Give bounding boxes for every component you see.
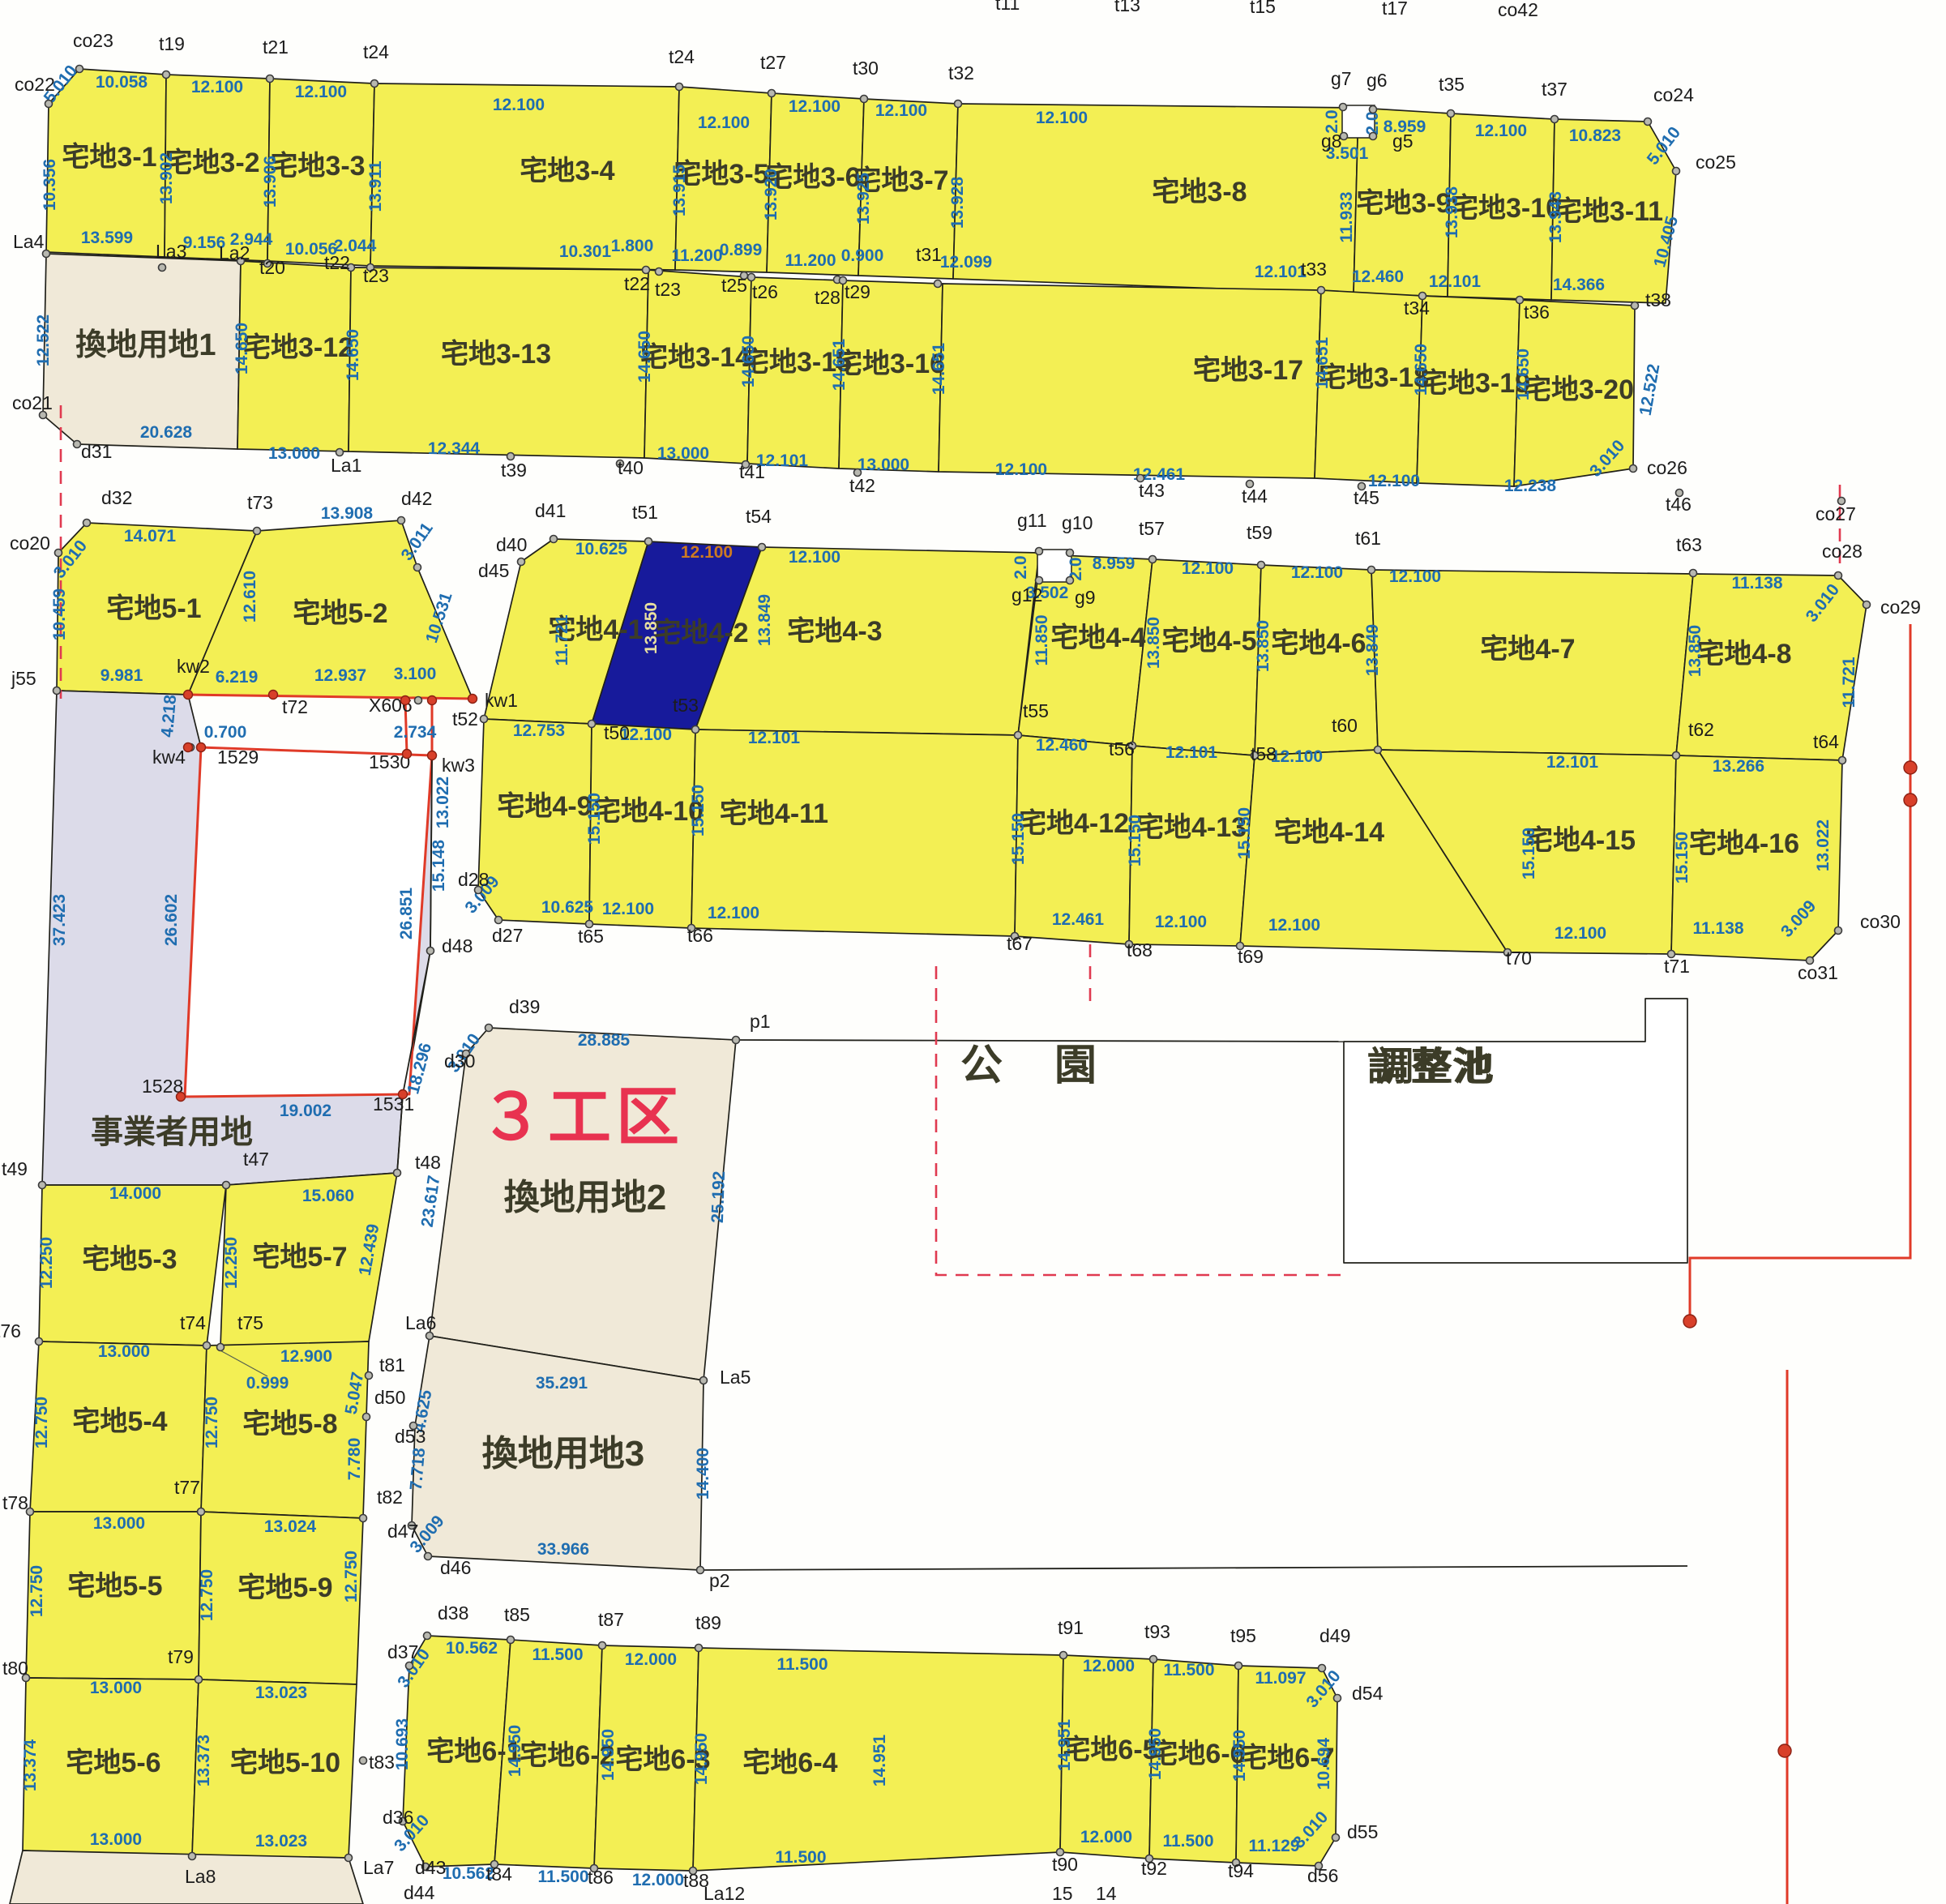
survey-point-t73: t73: [247, 492, 273, 513]
survey-dot-co20: [55, 550, 62, 557]
survey-point-t30: t30: [853, 58, 879, 79]
survey-dot-t93: [1150, 1656, 1157, 1663]
parcel-label-宅地3-4: 宅地3-4: [520, 155, 614, 186]
survey-dot-t87: [599, 1642, 606, 1649]
survey-point-t44: t44: [1242, 486, 1268, 507]
dimension-13.902: 13.902: [157, 152, 176, 204]
survey-dot-t79: [195, 1676, 203, 1684]
dimension-12.461: 12.461: [1052, 910, 1105, 929]
survey-dot-t91: [1060, 1652, 1067, 1659]
survey-dot-t62: [1673, 752, 1680, 759]
survey-point-1531: 1531: [373, 1093, 414, 1115]
survey-dot-t76: [36, 1338, 43, 1346]
dimension-26.851: 26.851: [397, 888, 416, 940]
survey-point-co24: co24: [1653, 84, 1694, 105]
dimension-2.0: 2.0: [1363, 111, 1382, 135]
dimension-4.218: 4.218: [158, 694, 181, 738]
survey-point-t35: t35: [1439, 74, 1465, 95]
survey-point-t15: t15: [1250, 0, 1276, 17]
big-label-公園: 公 園: [960, 1042, 1101, 1089]
dimension-13.850: 13.850: [1144, 617, 1163, 669]
dimension-12.101: 12.101: [1429, 272, 1482, 291]
survey-point-t60: t60: [1332, 715, 1358, 736]
parcel-label-宅地4-14: 宅地4-14: [1274, 816, 1384, 848]
dimension-6.219: 6.219: [216, 668, 259, 687]
survey-point-La12: La12: [704, 1883, 745, 1904]
survey-point-t68: t68: [1127, 939, 1153, 961]
dimension-12.750: 12.750: [203, 1397, 221, 1448]
parcel-label-換地用地3: 換地用地3: [482, 1434, 644, 1474]
survey-dot-t33: [1318, 287, 1325, 294]
survey-point-t69: t69: [1238, 946, 1264, 967]
dimension-20.628: 20.628: [140, 423, 193, 442]
survey-point-g7: g7: [1331, 68, 1352, 89]
survey-point-t72: t72: [282, 696, 308, 717]
survey-dot-g11: [1036, 548, 1043, 555]
dimension-12.100: 12.100: [875, 101, 927, 120]
survey-point-d32: d32: [101, 487, 132, 508]
survey-dot-d49: [1319, 1665, 1326, 1672]
parcel-label-宅地3-3: 宅地3-3: [270, 150, 365, 182]
survey-point-d47: d47: [387, 1521, 418, 1542]
parcel-label-換地用地1: 換地用地1: [75, 328, 216, 362]
survey-dot-g10: [1067, 550, 1074, 557]
dimension-11.721: 11.721: [553, 614, 571, 665]
survey-point-t50: t50: [604, 722, 630, 743]
dimension-15.060: 15.060: [302, 1187, 354, 1205]
red-marker-dot: [269, 691, 278, 700]
dimension-26.602: 26.602: [162, 894, 181, 946]
dimension-11.500: 11.500: [537, 1868, 588, 1886]
dimension-28.885: 28.885: [578, 1031, 631, 1050]
cadastral-map-svg: 宅地3-1宅地3-2宅地3-3宅地3-4宅地3-5宅地3-6宅地3-7宅地3-8…: [0, 0, 1946, 1904]
parcel-label-宅地3-17: 宅地3-17: [1193, 354, 1303, 386]
dimension-12.522: 12.522: [1636, 362, 1664, 417]
survey-dot-co23: [76, 66, 83, 73]
parcel-label-宅地4-16: 宅地4-16: [1689, 828, 1799, 859]
parcel-label-宅地3-9: 宅地3-9: [1356, 187, 1451, 219]
survey-point-t51: t51: [632, 502, 658, 523]
parcel-label-宅地3-8: 宅地3-8: [1152, 176, 1247, 208]
dimension-11.500: 11.500: [1162, 1832, 1213, 1851]
survey-point-co42: co42: [1498, 0, 1538, 20]
dimension-11.200: 11.200: [785, 251, 836, 270]
parcel-label-宅地4-7: 宅地4-7: [1480, 633, 1575, 665]
dimension-13.373: 13.373: [195, 1735, 213, 1786]
dimension-37.423: 37.423: [50, 894, 69, 946]
survey-dot-t64: [1839, 757, 1846, 764]
survey-point-d41: d41: [535, 500, 566, 521]
dimension-0.899: 0.899: [720, 241, 763, 259]
dimension-11.850: 11.850: [1033, 614, 1051, 665]
dimension-2.0: 2.0: [1011, 555, 1030, 579]
survey-dot-t85: [507, 1637, 515, 1644]
dimension-13.925: 13.925: [854, 173, 873, 225]
dimension-11.500: 11.500: [776, 1655, 828, 1674]
survey-dot-co30: [1835, 927, 1842, 935]
survey-dot-p2: [697, 1567, 704, 1574]
survey-dot-t89: [695, 1645, 703, 1652]
survey-point-t29: t29: [845, 281, 870, 302]
survey-point-d42: d42: [401, 488, 432, 509]
survey-dot-g7: [1340, 104, 1347, 111]
dimension-1.800: 1.800: [611, 237, 654, 255]
survey-dot-co24: [1644, 118, 1652, 126]
survey-point-t84: t84: [486, 1863, 512, 1885]
survey-point-t87: t87: [598, 1609, 624, 1630]
survey-dot-t35: [1448, 110, 1455, 118]
dimension-0.700: 0.700: [204, 723, 247, 742]
parcel-label-宅地4-8: 宅地4-8: [1696, 638, 1791, 670]
parcel-宅地4-6[interactable]: [1255, 565, 1378, 755]
survey-dot-d41: [550, 536, 558, 543]
survey-point-j55: j55: [11, 668, 36, 689]
survey-point-t62: t62: [1688, 719, 1714, 740]
parcel-label-宅地3-16: 宅地3-16: [835, 348, 945, 379]
survey-point-d45: d45: [478, 560, 509, 581]
black-line: [736, 1040, 1344, 1042]
survey-dot-t74: [203, 1342, 211, 1350]
survey-point-1529: 1529: [217, 747, 259, 768]
parcel-label-宅地4-10: 宅地4-10: [593, 795, 704, 827]
dimension-9.981: 9.981: [101, 666, 143, 685]
dimension-10.625: 10.625: [541, 898, 594, 917]
dimension-13.000: 13.000: [90, 1679, 142, 1697]
survey-point-t93: t93: [1144, 1621, 1170, 1642]
dimension-12.750: 12.750: [28, 1565, 46, 1617]
dimension-12.100: 12.100: [1155, 913, 1207, 931]
dimension-12.101: 12.101: [748, 729, 801, 747]
survey-point-d38: d38: [438, 1602, 468, 1624]
survey-point-t28: t28: [815, 287, 840, 308]
dimension-14.650: 14.650: [1514, 349, 1533, 400]
parcel-label-宅地4-11: 宅地4-11: [720, 798, 828, 829]
survey-point-d31: d31: [81, 441, 112, 462]
dimension-12.250: 12.250: [37, 1237, 56, 1289]
survey-point-t34: t34: [1404, 297, 1430, 319]
red-marker-dot: [1904, 761, 1917, 774]
dimension-12.100: 12.100: [1475, 122, 1527, 140]
dimension-10.301: 10.301: [559, 242, 612, 261]
parcel-label-宅地3-10: 宅地3-10: [1451, 192, 1561, 224]
survey-point-t78: t78: [2, 1492, 28, 1513]
survey-point-t39: t39: [501, 460, 527, 481]
survey-point-d44: d44: [404, 1882, 435, 1903]
dimension-13.849: 13.849: [755, 594, 774, 646]
survey-point-g5: g5: [1392, 130, 1414, 152]
survey-point-t55: t55: [1023, 700, 1049, 721]
survey-dot-d31: [74, 441, 81, 448]
survey-point-t46: t46: [1666, 494, 1692, 515]
survey-point-kw1: kw1: [485, 690, 518, 711]
survey-point-co20: co20: [10, 533, 50, 554]
survey-point-d28: d28: [458, 869, 489, 890]
dimension-13.022: 13.022: [1814, 819, 1833, 871]
survey-dot-d42: [398, 517, 405, 524]
dimension-12.100: 12.100: [1036, 109, 1088, 127]
dimension-11.500: 11.500: [532, 1645, 583, 1664]
dimension-35.291: 35.291: [536, 1374, 588, 1393]
survey-dot-d46: [425, 1553, 432, 1560]
survey-point-t57: t57: [1139, 518, 1165, 539]
parcel-label-宅地4-6: 宅地4-6: [1271, 627, 1366, 659]
survey-point-t21: t21: [263, 36, 289, 58]
dimension-13.022: 13.022: [434, 777, 452, 828]
survey-dot-La3: [159, 264, 166, 272]
dimension-14.651: 14.651: [830, 339, 849, 391]
survey-point-kw2: kw2: [177, 656, 210, 677]
survey-dot-t27: [768, 90, 776, 97]
dimension-10.562: 10.562: [446, 1639, 498, 1658]
red-marker-dot: [1683, 1315, 1696, 1328]
survey-point-t23: t23: [363, 265, 389, 286]
survey-point-t25: t25: [721, 275, 747, 296]
survey-point-co21: co21: [12, 392, 53, 413]
survey-dot-t23: [656, 268, 663, 276]
dimension-12.000: 12.000: [1080, 1828, 1132, 1846]
survey-dot-g6: [1370, 106, 1377, 113]
dimension-11.721: 11.721: [1840, 657, 1858, 708]
survey-point-g12: g12: [1011, 584, 1042, 605]
survey-dot-p1: [733, 1037, 740, 1044]
survey-point-co29: co29: [1880, 597, 1921, 618]
dimension-15.150: 15.150: [585, 793, 604, 845]
survey-dot-d39: [485, 1025, 493, 1032]
dimension-12.460: 12.460: [1036, 736, 1088, 755]
survey-point-t76: t76: [0, 1320, 21, 1341]
survey-point-La1: La1: [331, 455, 361, 476]
survey-point-La3: La3: [156, 241, 186, 262]
survey-dot-t60: [1375, 747, 1382, 754]
dimension-11.138: 11.138: [1731, 574, 1782, 593]
survey-point-t23: t23: [655, 279, 681, 300]
dimension-13.908: 13.908: [321, 504, 374, 523]
dimension-12.100: 12.100: [1555, 924, 1606, 943]
survey-point-t53: t53: [673, 695, 699, 716]
survey-point-d39: d39: [509, 996, 540, 1017]
dimension-14.650: 14.650: [739, 336, 758, 387]
survey-point-kw3: kw3: [442, 755, 475, 776]
survey-dot-t38: [1632, 302, 1639, 310]
dimension-13.920: 13.920: [762, 169, 781, 220]
red-marker-dot: [401, 696, 410, 705]
survey-dot-t59: [1258, 562, 1265, 569]
survey-dot-t24: [676, 83, 683, 91]
dimension-10.694: 10.694: [1315, 1738, 1333, 1791]
dimension-13.024: 13.024: [264, 1517, 317, 1536]
dimension-11.500: 11.500: [1163, 1661, 1214, 1679]
parcel-label-宅地3-13: 宅地3-13: [441, 338, 551, 370]
parcel-label-宅地4-13: 宅地4-13: [1136, 811, 1247, 843]
dimension-10.356: 10.356: [41, 159, 59, 211]
dimension-12.750: 12.750: [342, 1551, 361, 1602]
dimension-14.650: 14.650: [233, 323, 251, 374]
survey-point-t67: t67: [1007, 933, 1033, 954]
survey-point-t40: t40: [618, 457, 644, 478]
dimension-12.250: 12.250: [222, 1237, 241, 1289]
survey-point-t92: t92: [1141, 1858, 1167, 1879]
big-label-３工区: ３工区: [480, 1081, 684, 1153]
survey-point-d56: d56: [1307, 1865, 1338, 1886]
parcel-label-宅地5-4: 宅地5-4: [72, 1406, 167, 1437]
red-marker-dot: [177, 1093, 186, 1102]
dimension-19.002: 19.002: [280, 1102, 331, 1120]
survey-point-kw4: kw4: [152, 747, 186, 768]
survey-point-t11: t11: [995, 0, 1020, 14]
survey-point-co31: co31: [1798, 962, 1838, 983]
parcel-label-宅地4-5: 宅地4-5: [1161, 625, 1256, 657]
survey-dot-d55: [1332, 1834, 1340, 1842]
dimension-10.823: 10.823: [1569, 126, 1621, 145]
dimension-13.000: 13.000: [90, 1830, 142, 1849]
parcel-label-宅地3-14: 宅地3-14: [640, 341, 751, 373]
survey-point-t64: t64: [1813, 731, 1839, 752]
dimension-13.938: 13.938: [1443, 186, 1461, 239]
dimension-13.266: 13.266: [1713, 757, 1764, 776]
parcel-label-宅地4-9: 宅地4-9: [497, 790, 592, 822]
survey-dot-d54: [1334, 1695, 1341, 1702]
survey-dot-d48: [427, 948, 434, 955]
parcel-label-宅地3-2: 宅地3-2: [165, 147, 259, 178]
big-label-調整池: 調整池: [1367, 1046, 1499, 1089]
dimension-12.344: 12.344: [428, 439, 481, 458]
dimension-12.937: 12.937: [314, 666, 366, 685]
dimension-12.100: 12.100: [602, 900, 654, 918]
survey-point-d27: d27: [492, 925, 523, 946]
survey-point-t59: t59: [1247, 522, 1272, 543]
survey-point-co23: co23: [73, 30, 113, 51]
survey-dot-d27: [495, 917, 503, 924]
survey-point-15: 15: [1052, 1883, 1073, 1904]
survey-point-co26: co26: [1647, 457, 1687, 478]
dimension-13.850: 13.850: [1686, 625, 1704, 677]
dimension-14.951: 14.951: [870, 1735, 889, 1787]
dimension-12.000: 12.000: [632, 1871, 684, 1889]
survey-point-t20: t20: [259, 257, 285, 278]
survey-point-t91: t91: [1058, 1617, 1084, 1638]
survey-point-t77: t77: [174, 1477, 200, 1498]
dimension-14.950: 14.950: [599, 1729, 618, 1781]
survey-dot-t75: [217, 1344, 225, 1351]
dimension-14.400: 14.400: [694, 1448, 712, 1500]
dimension-12.100: 12.100: [681, 543, 733, 562]
dimension-13.599: 13.599: [81, 229, 133, 247]
reddash-line: [936, 966, 1345, 1275]
survey-dot-t82: [360, 1515, 367, 1522]
survey-point-t79: t79: [168, 1646, 194, 1667]
red-marker-dot: [403, 750, 412, 759]
survey-point-p1: p1: [750, 1011, 771, 1032]
survey-point-co30: co30: [1860, 911, 1901, 932]
survey-dot-t52: [481, 716, 488, 723]
dimension-12.100: 12.100: [1271, 747, 1323, 766]
survey-point-La6: La6: [405, 1312, 436, 1333]
survey-dot-t54: [759, 544, 766, 551]
survey-dot-t24: [371, 80, 379, 88]
dimension-3.100: 3.100: [394, 665, 437, 683]
survey-point-t38: t38: [1645, 289, 1671, 310]
dimension-12.750: 12.750: [32, 1397, 51, 1448]
survey-point-g10: g10: [1062, 512, 1093, 533]
parcel-label-宅地5-9: 宅地5-9: [237, 1572, 332, 1603]
survey-point-t75: t75: [237, 1312, 263, 1333]
survey-dot-t53: [692, 726, 699, 734]
survey-point-co25: co25: [1696, 152, 1736, 173]
dimension-12.100: 12.100: [191, 78, 243, 96]
survey-dot-t48: [394, 1170, 401, 1177]
red-marker-dot: [184, 691, 193, 700]
dimension-13.023: 13.023: [255, 1684, 307, 1702]
survey-dot-t51: [645, 538, 652, 546]
survey-point-g8: g8: [1321, 130, 1342, 152]
survey-dot-j55: [53, 687, 61, 695]
dimension-14.650: 14.650: [635, 331, 654, 383]
survey-point-d54: d54: [1352, 1683, 1384, 1704]
survey-point-t32: t32: [948, 62, 974, 83]
survey-point-t90: t90: [1052, 1854, 1078, 1875]
dimension-15.150: 15.150: [1673, 832, 1692, 884]
parcel-label-宅地5-3: 宅地5-3: [82, 1243, 177, 1275]
dimension-15.150: 15.150: [1009, 813, 1028, 865]
survey-point-t43: t43: [1139, 480, 1165, 501]
survey-dot-d32: [83, 520, 91, 527]
survey-dot-d45: [414, 564, 421, 571]
survey-point-g11: g11: [1017, 510, 1047, 531]
dimension-12.238: 12.238: [1504, 477, 1557, 495]
parcel-label-宅地3-1: 宅地3-1: [62, 141, 156, 173]
survey-dot-t31: [935, 280, 942, 288]
survey-point-t66: t66: [687, 925, 713, 946]
survey-point-d36: d36: [383, 1807, 413, 1828]
dimension-13.850: 13.850: [642, 602, 661, 654]
dimension-7.718: 7.718: [407, 1447, 430, 1491]
parcel-label-宅地3-11: 宅地3-11: [1555, 195, 1663, 227]
parcel-調整池[interactable]: [1344, 999, 1687, 1263]
survey-point-t85: t85: [504, 1604, 530, 1625]
dimension-12.100: 12.100: [708, 904, 759, 922]
survey-point-La7: La7: [363, 1857, 394, 1878]
dimension-14.950: 14.950: [692, 1733, 711, 1785]
survey-dot-t26: [748, 274, 755, 281]
survey-point-t49: t49: [2, 1158, 28, 1179]
survey-point-t83: t83: [369, 1752, 395, 1773]
survey-dot-X606: [415, 697, 422, 704]
survey-point-t58: t58: [1251, 743, 1277, 764]
survey-point-t70: t70: [1506, 948, 1532, 969]
parcel-label-宅地5-8: 宅地5-8: [242, 1408, 337, 1440]
survey-point-t33: t33: [1301, 259, 1327, 280]
survey-dot-d50: [363, 1414, 370, 1421]
survey-dot-co29: [1863, 601, 1871, 609]
survey-point-t17: t17: [1382, 0, 1408, 19]
survey-point-t24: t24: [669, 46, 695, 67]
survey-point-t74: t74: [180, 1312, 206, 1333]
survey-dot-t49: [39, 1182, 46, 1189]
survey-dot-t95: [1235, 1662, 1242, 1670]
dimension-12.100: 12.100: [1268, 916, 1320, 935]
survey-point-t63: t63: [1676, 534, 1702, 555]
parcel-label-宅地4-4: 宅地4-4: [1050, 622, 1145, 653]
survey-point-p2: p2: [709, 1570, 730, 1591]
dimension-2.734: 2.734: [394, 723, 437, 742]
survey-point-La8: La8: [185, 1866, 216, 1887]
area-shape: [185, 747, 432, 1097]
survey-dot-t21: [267, 75, 274, 83]
survey-point-t48: t48: [415, 1152, 441, 1173]
survey-dot-La7: [345, 1855, 353, 1862]
dimension-13.943: 13.943: [1546, 191, 1565, 243]
survey-point-co27: co27: [1816, 503, 1856, 524]
